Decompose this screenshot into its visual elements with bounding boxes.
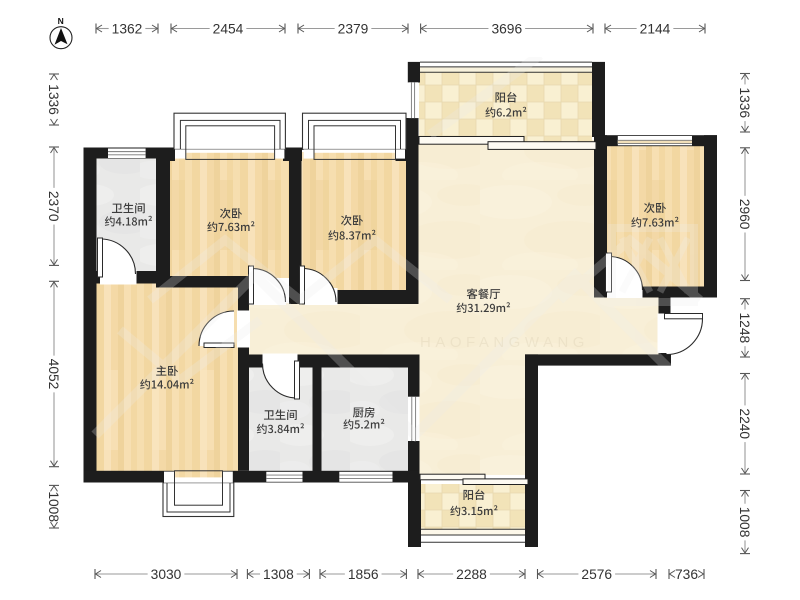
svg-text:2288: 2288 — [456, 567, 487, 582]
svg-text:1336: 1336 — [737, 87, 752, 118]
svg-text:2379: 2379 — [338, 21, 369, 36]
svg-text:4052: 4052 — [46, 359, 61, 390]
svg-text:1336: 1336 — [46, 84, 61, 115]
svg-text:2144: 2144 — [640, 21, 671, 36]
svg-text:2454: 2454 — [213, 21, 244, 36]
svg-text:1008: 1008 — [737, 507, 752, 538]
svg-text:2960: 2960 — [737, 199, 752, 230]
svg-text:2370: 2370 — [46, 191, 61, 222]
svg-text:2240: 2240 — [737, 408, 752, 439]
svg-text:N: N — [58, 16, 64, 26]
svg-text:2576: 2576 — [581, 567, 612, 582]
svg-text:1308: 1308 — [263, 567, 294, 582]
svg-text:3030: 3030 — [151, 567, 182, 582]
svg-text:1248: 1248 — [737, 312, 752, 343]
svg-text:1008: 1008 — [46, 491, 61, 522]
svg-text:1856: 1856 — [348, 567, 379, 582]
svg-text:736: 736 — [675, 567, 698, 582]
svg-text:1362: 1362 — [112, 21, 143, 36]
svg-text:3696: 3696 — [491, 21, 522, 36]
svg-text:HAOFANGWANG: HAOFANGWANG — [420, 334, 589, 351]
